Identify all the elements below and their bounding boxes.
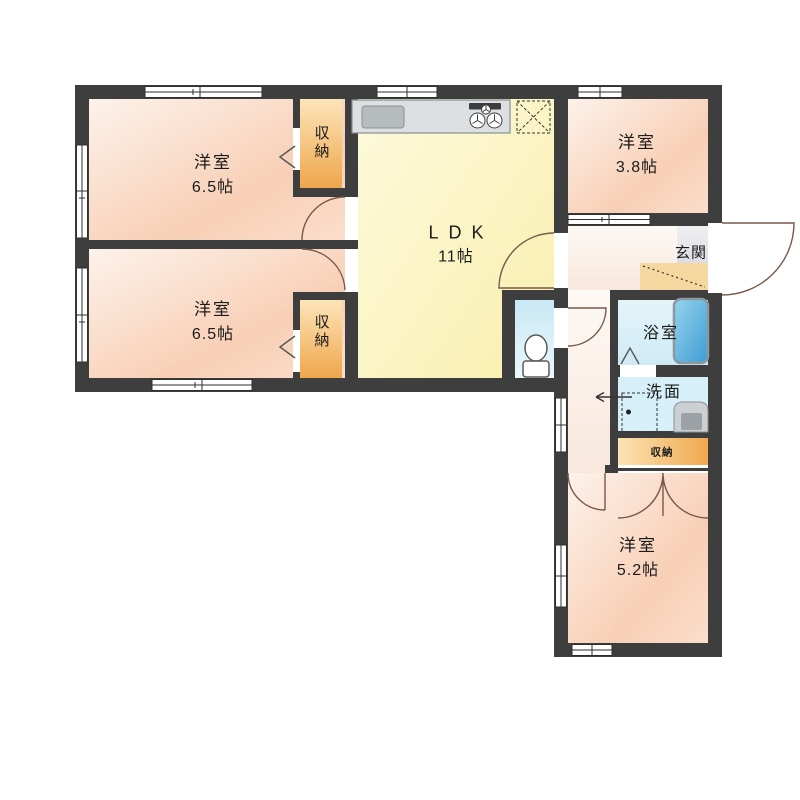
window-icon bbox=[572, 645, 612, 656]
room-name: 洋室 bbox=[194, 151, 232, 176]
door-opening bbox=[345, 249, 358, 292]
room-label-closet-east: 収納 bbox=[651, 445, 674, 460]
wall-segment bbox=[708, 85, 722, 657]
door-opening bbox=[293, 128, 300, 170]
wall-segment bbox=[345, 99, 358, 392]
window-icon bbox=[77, 145, 88, 238]
door-arc-entrance bbox=[722, 223, 794, 295]
floor-corridor bbox=[568, 290, 610, 473]
room-name: 洋室 bbox=[618, 131, 656, 156]
wall-segment bbox=[605, 465, 618, 473]
window-icon bbox=[556, 545, 567, 607]
room-label-bedroom-se: 洋室 5.2帖 bbox=[617, 534, 659, 582]
sliding-door-icon bbox=[568, 215, 650, 225]
room-label-closet-south: 収納 bbox=[311, 314, 332, 350]
wall-segment bbox=[610, 290, 618, 473]
room-size: 11帖 bbox=[438, 245, 474, 268]
room-label-ldk: LDK 11帖 bbox=[418, 219, 493, 268]
kitchen-sink-icon bbox=[362, 106, 404, 128]
toilet-icon bbox=[523, 335, 549, 377]
window-icon bbox=[377, 87, 437, 98]
washbasin-icon bbox=[674, 402, 708, 432]
closet-east-front-line bbox=[618, 468, 708, 471]
room-size: 3.8帖 bbox=[616, 156, 658, 179]
room-label-bedroom-nw: 洋室 6.5帖 bbox=[192, 151, 234, 199]
room-name: 洋室 bbox=[619, 534, 657, 559]
wall-segment bbox=[293, 292, 358, 300]
window-icon bbox=[578, 87, 622, 98]
wall-segment bbox=[75, 378, 568, 392]
wall-segment bbox=[502, 300, 515, 378]
window-icon bbox=[152, 380, 252, 391]
room-name: 洋室 bbox=[194, 298, 232, 323]
floorplan: 洋室 6.5帖 洋室 6.5帖 LDK 11帖 洋室 3.8帖 洋室 5.2帖 … bbox=[0, 0, 800, 800]
room-label-bedroom-ne: 洋室 3.8帖 bbox=[616, 131, 658, 179]
window-icon bbox=[556, 398, 567, 452]
door-opening bbox=[620, 365, 656, 377]
room-label-entrance: 玄関 bbox=[675, 242, 707, 263]
room-name: LDK bbox=[418, 219, 493, 245]
door-opening bbox=[708, 223, 722, 293]
window-icon bbox=[145, 87, 262, 98]
door-opening bbox=[554, 308, 568, 348]
wall-segment bbox=[502, 290, 568, 300]
room-size: 6.5帖 bbox=[192, 323, 234, 346]
room-label-bedroom-sw: 洋室 6.5帖 bbox=[192, 298, 234, 346]
wall-segment bbox=[293, 188, 358, 197]
room-label-washroom: 洗面 bbox=[646, 378, 682, 402]
room-size: 5.2帖 bbox=[617, 559, 659, 582]
entrance-step bbox=[640, 263, 708, 290]
room-label-closet-north: 収納 bbox=[311, 125, 332, 161]
window-icon bbox=[77, 268, 88, 362]
room-label-bathroom: 浴室 bbox=[643, 319, 679, 343]
door-opening bbox=[554, 233, 568, 288]
door-opening bbox=[345, 197, 358, 240]
room-size: 6.5帖 bbox=[192, 176, 234, 199]
wall-segment bbox=[75, 240, 358, 249]
bathtub-icon bbox=[674, 299, 708, 363]
